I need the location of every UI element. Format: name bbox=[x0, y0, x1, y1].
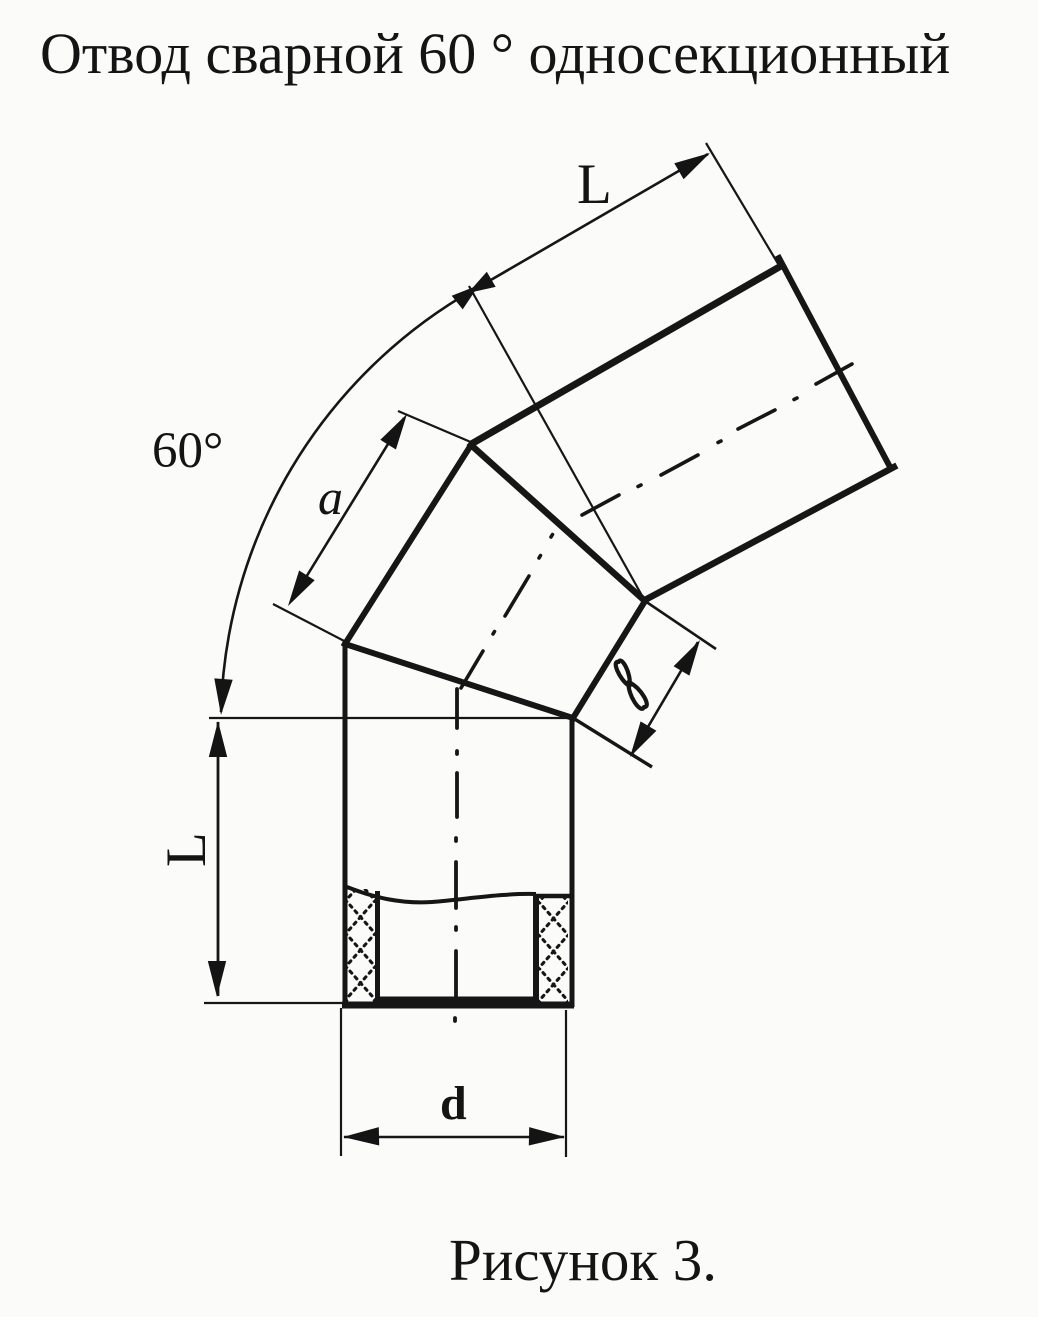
svg-text:60°: 60° bbox=[152, 423, 223, 479]
svg-text:L: L bbox=[155, 832, 218, 867]
svg-text:L: L bbox=[577, 153, 612, 216]
svg-text:Рисунок 3.: Рисунок 3. bbox=[449, 1227, 717, 1293]
svg-text:d: d bbox=[440, 1077, 467, 1130]
svg-text:Отвод сварной 60 ° односекцион: Отвод сварной 60 ° односекционный bbox=[40, 21, 950, 86]
svg-text:a: a bbox=[318, 469, 343, 525]
